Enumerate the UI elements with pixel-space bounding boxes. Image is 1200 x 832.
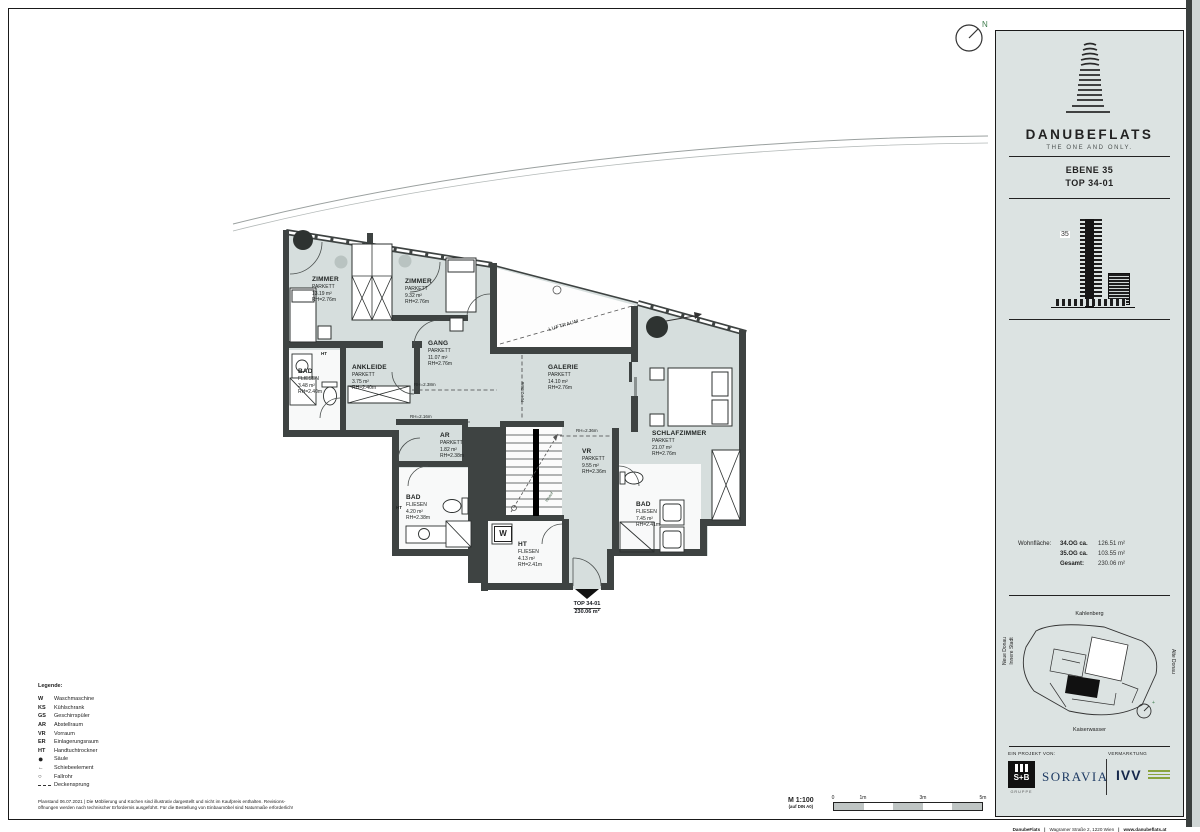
divider (1009, 156, 1170, 157)
soravia-logo: SORAVIA (1042, 769, 1109, 785)
washing-machine-marker: W (494, 526, 512, 542)
brand-tagline: THE ONE AND ONLY. (996, 145, 1183, 151)
room-label-zimmer-2: ZIMMER PARKETT 9.32 m² RH=2.76m (405, 278, 432, 306)
rh-label-1: RH=2.38m (414, 382, 436, 387)
svg-text:+: + (1152, 700, 1155, 706)
room-label-ankleide: ANKLEIDE PARKETT 3.75 m² RH=2.40m (352, 364, 387, 392)
title-block-panel: DANUBEFLATS THE ONE AND ONLY. EBENE 35 T… (995, 30, 1184, 817)
divider (1009, 198, 1170, 199)
map-label-south: Kaiserwasser (996, 727, 1183, 733)
sheet-right-margin (1192, 0, 1200, 827)
ivv-logo: IVV (1116, 767, 1142, 783)
legend-item-geschirrspueler: GSGeschirrspüler (38, 712, 99, 721)
legend-item-kuehlschrank: KSKühlschrank (38, 704, 99, 713)
room-label-galerie: GALERIE PARKETT 14.10 m² RH=2.76m (548, 364, 578, 392)
floorplan-drawing (0, 0, 1000, 827)
entry-label: TOP 34-01 230.06 m² (574, 601, 601, 615)
room-label-schlafzimmer: SCHLAFZIMMER PARKETT 21.07 m² RH=2.76m (652, 430, 706, 458)
legend-item-abstellraum: ARAbstellraum (38, 721, 99, 730)
area-summary: Wohnfläche: 34.OG ca.126.51 m² 35.OG ca.… (1018, 539, 1125, 569)
ht-marker-1: HT (321, 351, 327, 356)
building-elevation: 35 (996, 211, 1183, 323)
legend-item-einlagerungsraum: EREinlagerungsraum (38, 738, 99, 747)
room-label-ht: HT FLIESEN 4.13 m² RH=2.41m (518, 541, 542, 569)
footer-address: Wagramer Straße 2, 1220 Wien (1049, 827, 1114, 832)
room-label-bad-2: BAD FLIESEN 4.20 m² RH=2.38m (406, 494, 430, 522)
legend-item-fallrohr: ○Fallrohr (38, 772, 99, 781)
divider (1009, 319, 1170, 320)
top-number-label: TOP 34-01 (996, 178, 1183, 188)
project-by-label: EIN PROJEKT VON: (1008, 751, 1055, 756)
area-summary-label: Wohnfläche: (1018, 539, 1060, 549)
floor-35-badge: 35 (1060, 231, 1070, 238)
tower-core (1085, 219, 1094, 307)
room-label-vr: VR PARKETT 9.55 m² RH=2.36m (582, 448, 606, 476)
scale-text: M 1:100 (auf DIN A0) (788, 797, 814, 809)
danubeflats-logo-icon (1060, 41, 1120, 125)
legend-item-deckensprung: Deckensprung (38, 781, 99, 790)
legend-item-schiebeelement: ←Schiebeelement (38, 764, 99, 773)
sb-gruppe-sub: GRUPPE (1008, 790, 1035, 794)
fallrohr-circle-icon: ○ (38, 774, 54, 780)
rh-label-2: RH=2.16m (410, 414, 432, 419)
marketing-label: VERMARKTUNG (1108, 751, 1147, 756)
legend: Legende: WWaschmaschine KSKühlschrank GS… (38, 683, 99, 790)
legend-item-saeule: ●Säule (38, 755, 99, 764)
site-plan-icon: + (1014, 619, 1166, 725)
scale-bar: 0 1m 3m 5m (833, 795, 983, 811)
base-wing-icon (1056, 299, 1126, 306)
room-label-gang: GANG PARKETT 11.07 m² RH=2.76m (428, 340, 452, 368)
north-compass-icon: N (952, 18, 992, 56)
floorplan-sheet: { "colors": { "room_fill": "#d6dedd", "w… (0, 0, 1200, 827)
legend-item-waschmaschine: WWaschmaschine (38, 695, 99, 704)
sb-bars-icon (1008, 764, 1035, 772)
divider (1009, 595, 1170, 596)
footer-website-link[interactable]: www.danubeflats.at (1123, 827, 1166, 832)
svg-text:N: N (982, 20, 988, 29)
footer-brand: DanubeFlats (1013, 827, 1041, 832)
map-label-north: Kahlenberg (996, 611, 1183, 617)
saeule-circle-icon: ● (38, 757, 54, 762)
sb-gruppe-logo: S+B (1008, 761, 1035, 788)
legend-item-handtuchtrockner: HTHandtuchtrockner (38, 747, 99, 756)
orientation-map: Kahlenberg Neue Donau Innere Stadt Alte … (996, 609, 1183, 744)
plan-footnote: Planstand 06.07.2021 | Die Möblierung un… (38, 799, 338, 811)
ht-marker-2: HT (396, 505, 402, 510)
slide-arrow-icon: ← (38, 765, 54, 771)
room-label-zimmer-1: ZIMMER PARKETT 13.19 m² RH=2.76m (312, 276, 339, 304)
room-label-bad-3: BAD FLIESEN 7.45 m² RH=2.41m (636, 501, 660, 529)
partner-logos: EIN PROJEKT VON: VERMARKTUNG S+B GRUPPE … (996, 747, 1183, 817)
ivv-lines-icon (1148, 770, 1170, 781)
rh-label-3: RH=2.36m (576, 428, 598, 433)
room-label-ar: AR PARKETT 1.82 m² RH=2.38m (440, 432, 464, 460)
ground-line (1051, 307, 1135, 308)
map-label-east: Alte Donau (1170, 649, 1176, 674)
legend-item-vorraum: VRVorraum (38, 729, 99, 738)
room-label-bad-1: BAD FLIESEN 3.48 m² RH=2.40m (298, 368, 322, 396)
logo-divider (1106, 759, 1107, 795)
rh-label-4: RH 2.36m (520, 382, 525, 402)
level-label: EBENE 35 (996, 165, 1183, 175)
deckensprung-dash-icon (38, 785, 51, 786)
sidebar-footer: DanubeFlats | Wagramer Straße 2, 1220 Wi… (996, 827, 1183, 832)
brand-name: DANUBEFLATS (996, 127, 1183, 142)
legend-title: Legende: (38, 683, 99, 689)
